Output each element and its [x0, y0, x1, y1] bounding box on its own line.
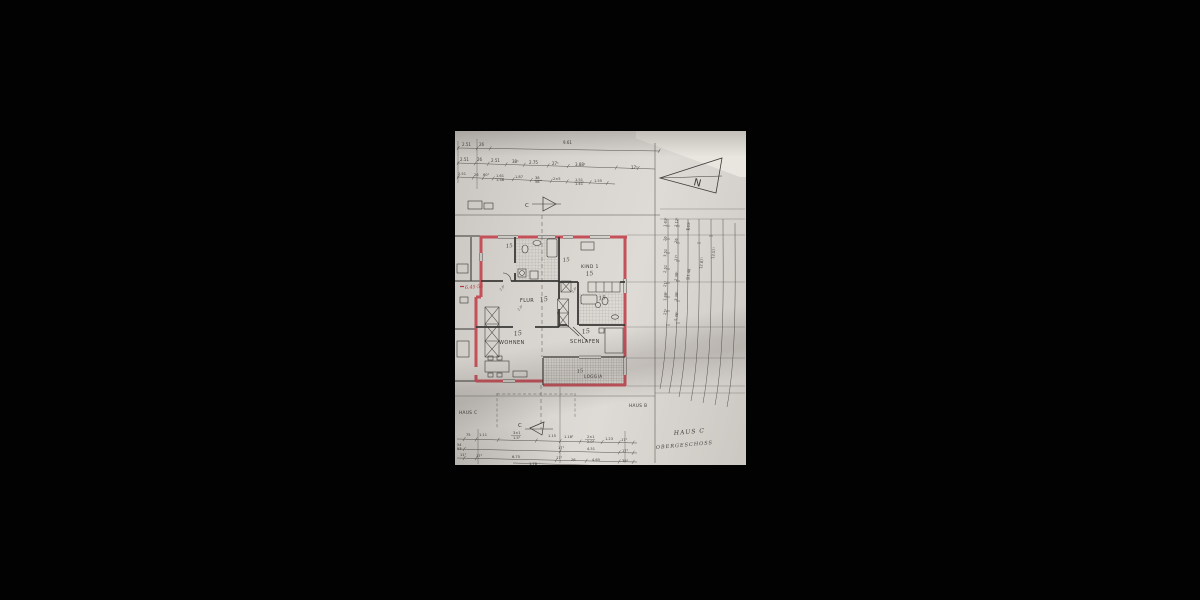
label-haus-c-title: HAUS C — [673, 427, 706, 437]
dim-label: 1.63¹ — [686, 221, 691, 231]
right-dim-chains — [660, 219, 735, 407]
right-dim-col4: 12.87¹ — [699, 256, 705, 269]
room-mark: 15 — [598, 295, 606, 302]
dim-label: 38¹ — [512, 159, 519, 164]
dim-label: 21¹ — [663, 280, 668, 287]
north-arrow: N — [660, 158, 722, 193]
dim-label: 1.11 — [479, 433, 487, 437]
red-annotation: 6.45·55 — [460, 284, 483, 291]
room-label-loggia: LOGGIA — [584, 374, 602, 379]
dim-label: 3×1 — [513, 431, 521, 435]
dim-label: 27¹ — [552, 161, 559, 166]
dim-label: 1.5¹ — [513, 436, 521, 440]
dim-label: 13.57¹ — [711, 246, 717, 259]
label-haus-c-left: HAUS C — [459, 410, 477, 415]
dim-label: 4.51 — [587, 447, 595, 451]
dim-label: 17¹ — [556, 456, 563, 460]
dim-label: 17¹ — [631, 165, 638, 170]
photo-of-floorplan: 2.51269.61 2.51262.5138¹2.7527¹3.88¹17¹ … — [0, 0, 1200, 600]
dim-label: 1.63¹ — [663, 217, 668, 227]
dim-label: 2.51 — [458, 172, 466, 176]
dim-label: 1.41 — [575, 182, 583, 186]
dim-label: 4.65 — [592, 458, 600, 462]
room-mark-loggia: 15 — [576, 368, 583, 375]
dim-label: 1.15 — [548, 434, 556, 438]
room-mark-wohnen: 15 — [513, 329, 522, 338]
label-haus-b: HAUS B — [629, 403, 647, 408]
dim-label: 1.38 — [496, 178, 505, 182]
dim-label: 17¹ — [622, 449, 629, 453]
right-dim-col3: 1.63¹11.48 — [686, 221, 691, 279]
north-label: N — [692, 177, 702, 189]
section-label-top: C — [525, 203, 529, 209]
dim-label: 11¹ — [460, 453, 467, 457]
top-dim-row2: 2.51262.5138¹2.7527¹3.88¹17¹ — [460, 157, 638, 170]
dim-label: 75 — [466, 433, 471, 437]
room-label-kind: KIND 1 — [581, 264, 599, 270]
dim-label: 2×5 — [553, 177, 561, 181]
right-dim-col2: 2.12¹2617¹2.38¹3.38¹5.36¹ — [674, 217, 679, 321]
dim-label: 6.75 — [512, 455, 520, 459]
door-mark: 2.0¹ — [498, 284, 506, 292]
top-dim-row3: 2.512660¹1.611.381.8738582×51.511.411.55 — [458, 172, 602, 186]
dim-label: 26 — [477, 157, 483, 162]
bottom-dim-row3: 11¹17¹6.7517¹264.6539¹1.78 — [460, 453, 629, 465]
room-mark: 15 — [505, 243, 513, 250]
dim-label: 11.48 — [686, 268, 691, 279]
room-label-wohnen: WOHNEN — [499, 340, 525, 346]
dim-label: 60¹ — [483, 173, 490, 177]
dim-label: 2×1 — [587, 435, 595, 439]
dim-label: 2.0¹ — [587, 440, 595, 444]
dim-label: 2.51 — [491, 158, 500, 163]
dim-label: 2.51 — [460, 157, 469, 162]
dim-label: 1.55 — [594, 179, 602, 183]
blueprint-paper: 2.51269.61 2.51262.5138¹2.7527¹3.88¹17¹ … — [455, 131, 746, 465]
section-label-bottom: C — [518, 423, 522, 429]
dim-label: 2.12¹ — [674, 217, 679, 227]
dim-label: 2.75 — [529, 160, 538, 165]
photo-shadow-top — [455, 131, 746, 157]
red-note-text: 6.45·55 — [465, 284, 484, 291]
dim-label: 12.87¹ — [699, 256, 705, 269]
dim-label: 2.51 — [663, 265, 668, 273]
dim-label: 1.18¹ — [564, 435, 574, 439]
dim-label: 1.87 — [515, 175, 523, 179]
dim-label: 53 — [457, 447, 462, 451]
dim-label: 3.88¹ — [575, 162, 586, 167]
dim-label: 3.51 — [663, 249, 668, 257]
room-mark-schlafen: 15 — [581, 327, 590, 336]
room-label-schlafen: SCHLAFEN — [570, 339, 600, 345]
room-label-flur: FLUR — [520, 298, 534, 304]
room-mark-flur: 15 — [539, 295, 548, 304]
dim-label: 17¹ — [558, 446, 565, 450]
door-mark: 2.0¹ — [516, 304, 524, 312]
dim-label: 17¹ — [621, 438, 628, 442]
dim-label: 3.38¹ — [674, 291, 679, 301]
label-obergeschoss: OBERGESCHOSS — [656, 440, 714, 451]
dim-label: 39¹ — [622, 459, 629, 463]
dim-label: 26 — [571, 458, 576, 462]
bottom-dim-row2: 545317¹4.5117¹ — [457, 443, 629, 453]
dim-label: 26 — [663, 235, 668, 241]
dim-label: 1.78 — [529, 462, 538, 465]
room-mark-kind: 15 — [585, 270, 594, 278]
right-dim-col5: 13.57¹ — [711, 246, 717, 259]
door-width-marks: 2.0¹2.0¹2.0¹ — [498, 284, 578, 312]
dim-label: 2.38¹ — [674, 271, 679, 281]
dim-label: 1.23 — [605, 437, 613, 441]
dim-label: 5.36¹ — [674, 311, 679, 321]
floorplan-drawing: 2.51269.61 2.51262.5138¹2.7527¹3.88¹17¹ … — [455, 131, 746, 465]
room-mark: 15 — [562, 257, 570, 264]
loggia-floor — [544, 358, 624, 384]
dashed-outline — [497, 393, 575, 429]
dim-label: 17¹ — [476, 454, 483, 458]
dim-label: 58 — [535, 180, 540, 184]
dim-label: 26 — [474, 173, 479, 177]
